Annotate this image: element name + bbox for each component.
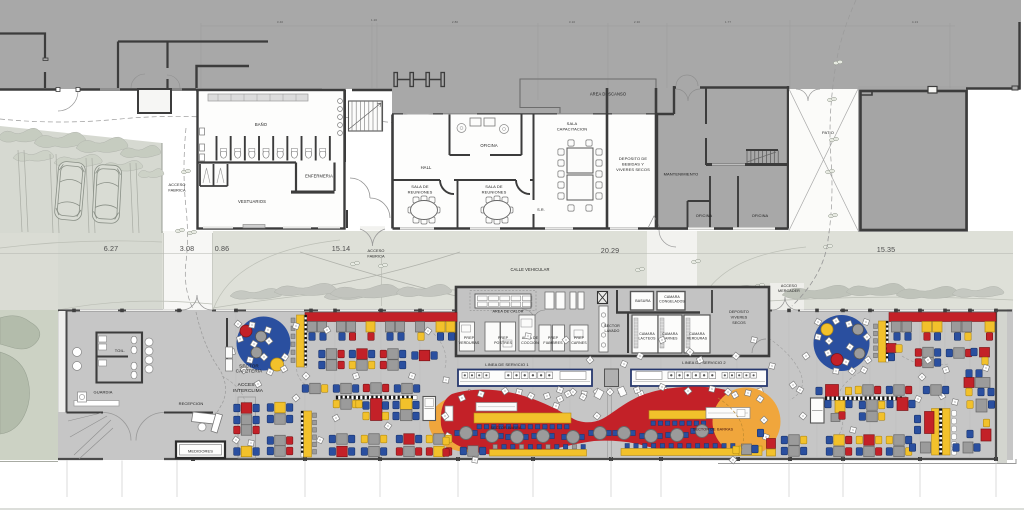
svg-text:OFICINA: OFICINA bbox=[752, 213, 769, 218]
svg-text:SECTOR: SECTOR bbox=[604, 324, 620, 328]
svg-text:CAPACITACION: CAPACITACION bbox=[557, 127, 588, 132]
svg-text:MANTENIMIENTO: MANTENIMIENTO bbox=[664, 172, 699, 177]
svg-text:CAMARA: CAMARA bbox=[639, 332, 655, 336]
svg-text:REUNIONES: REUNIONES bbox=[482, 190, 507, 195]
svg-text:AREA DE CALOR: AREA DE CALOR bbox=[492, 310, 523, 314]
svg-text:CAMARA: CAMARA bbox=[664, 295, 680, 299]
svg-text:REUNIONES: REUNIONES bbox=[408, 190, 433, 195]
svg-text:MERCADER: MERCADER bbox=[778, 289, 800, 293]
svg-text:VESTUARIOS: VESTUARIOS bbox=[238, 199, 266, 204]
svg-text:6.27: 6.27 bbox=[104, 244, 118, 253]
svg-text:RECEPCION: RECEPCION bbox=[179, 401, 204, 406]
svg-text:ENFERMERIA: ENFERMERIA bbox=[305, 174, 333, 179]
svg-text:LINEA DE SERVICIO 2: LINEA DE SERVICIO 2 bbox=[682, 360, 726, 365]
svg-text:FABRICA: FABRICA bbox=[168, 188, 186, 193]
svg-text:SALA DE: SALA DE bbox=[411, 184, 429, 189]
svg-text:3.40: 3.40 bbox=[277, 20, 283, 24]
svg-text:LACTEOS: LACTEOS bbox=[638, 337, 656, 341]
svg-text:LINEA DE SERVICIO 1: LINEA DE SERVICIO 1 bbox=[485, 362, 529, 367]
svg-text:SECTOR BARRA: SECTOR BARRA bbox=[490, 426, 521, 430]
svg-text:CAMARA: CAMARA bbox=[662, 332, 678, 336]
svg-text:CARNES: CARNES bbox=[571, 341, 587, 345]
svg-text:DEPOSITO DE: DEPOSITO DE bbox=[619, 156, 648, 161]
svg-text:PREP: PREP bbox=[464, 336, 475, 340]
svg-text:3.10: 3.10 bbox=[569, 20, 575, 24]
svg-text:VIVERES SECOS: VIVERES SECOS bbox=[616, 167, 650, 172]
svg-text:2.80: 2.80 bbox=[452, 20, 458, 24]
svg-text:15.14: 15.14 bbox=[332, 244, 351, 253]
svg-text:CONGELADOS: CONGELADOS bbox=[659, 300, 685, 304]
svg-text:4.13: 4.13 bbox=[912, 20, 918, 24]
svg-text:MEDIDORES: MEDIDORES bbox=[188, 449, 213, 454]
svg-text:PREP: PREP bbox=[498, 336, 509, 340]
svg-text:DEPOSITO: DEPOSITO bbox=[729, 310, 749, 314]
svg-text:0.86: 0.86 bbox=[215, 244, 229, 253]
svg-text:3.08: 3.08 bbox=[180, 244, 194, 253]
svg-text:VIVERES: VIVERES bbox=[731, 316, 748, 320]
svg-text:FABRICA: FABRICA bbox=[367, 254, 385, 259]
svg-text:HALL: HALL bbox=[421, 165, 432, 170]
svg-text:SALA: SALA bbox=[567, 121, 578, 126]
svg-text:POSTRES: POSTRES bbox=[494, 341, 512, 345]
svg-text:CALLE VEHICULAR: CALLE VEHICULAR bbox=[510, 267, 549, 272]
svg-text:2.30: 2.30 bbox=[634, 20, 640, 24]
svg-text:LAVADO: LAVADO bbox=[604, 329, 619, 333]
svg-text:FIAMBRES: FIAMBRES bbox=[543, 341, 563, 345]
svg-text:BAÑO: BAÑO bbox=[255, 122, 268, 127]
svg-text:BEBIDAS Y: BEBIDAS Y bbox=[622, 162, 644, 167]
svg-text:COCCION: COCCION bbox=[521, 341, 539, 345]
svg-text:SECOS: SECOS bbox=[732, 321, 746, 325]
svg-text:1.77: 1.77 bbox=[725, 20, 731, 24]
svg-text:OFICINA: OFICINA bbox=[696, 213, 713, 218]
svg-text:S.R.: S.R. bbox=[537, 208, 545, 212]
svg-text:VERDURAS: VERDURAS bbox=[687, 337, 708, 341]
svg-text:15.35: 15.35 bbox=[877, 245, 896, 254]
svg-text:PREP: PREP bbox=[574, 336, 585, 340]
svg-text:GUARDIA: GUARDIA bbox=[94, 390, 113, 395]
svg-text:CAMARA: CAMARA bbox=[689, 332, 705, 336]
svg-text:PREP: PREP bbox=[548, 336, 559, 340]
svg-text:INTERCLIMA: INTERCLIMA bbox=[233, 388, 264, 394]
svg-text:1.20: 1.20 bbox=[371, 18, 377, 22]
svg-text:PATIO: PATIO bbox=[822, 130, 834, 135]
svg-text:ACCESO: ACCESO bbox=[781, 284, 797, 288]
svg-text:CAFETERIA: CAFETERIA bbox=[236, 369, 264, 374]
svg-text:ACCESO: ACCESO bbox=[168, 182, 185, 187]
svg-text:TOIL.: TOIL. bbox=[115, 348, 125, 353]
svg-text:SALA DE: SALA DE bbox=[485, 184, 503, 189]
svg-text:SECTOR DE BARRAS: SECTOR DE BARRAS bbox=[693, 428, 734, 432]
svg-text:ACCESO: ACCESO bbox=[367, 248, 384, 253]
svg-text:BASURA: BASURA bbox=[635, 299, 651, 303]
svg-text:20.29: 20.29 bbox=[601, 246, 620, 255]
svg-text:OFICINA: OFICINA bbox=[480, 143, 497, 148]
svg-text:VERDURAS: VERDURAS bbox=[459, 341, 480, 345]
